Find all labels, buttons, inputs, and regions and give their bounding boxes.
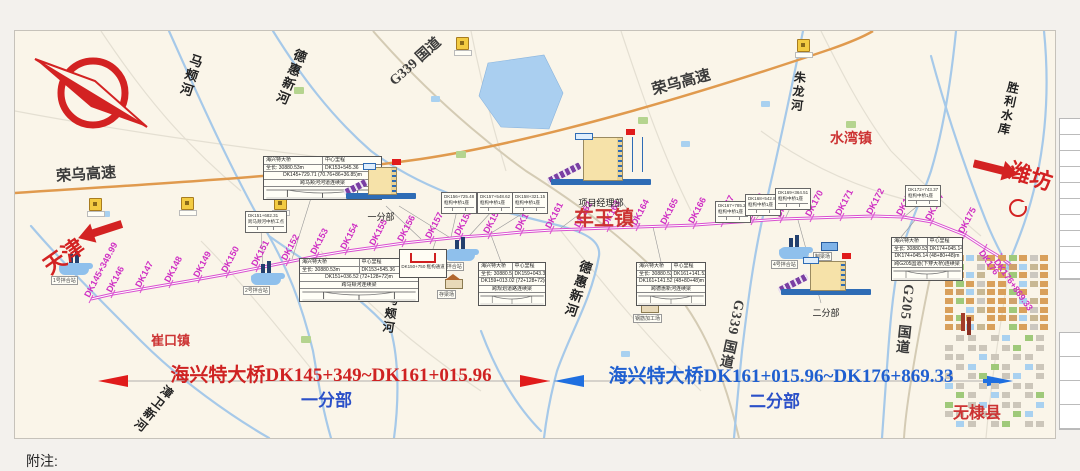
map-stage: 天津 潍坊 海兴特大桥DK145+349~DK161+015.96 一分部 海兴… [14,30,1056,439]
city-block [945,307,953,313]
city-block [987,289,995,295]
road-label: 荣乌高速 [55,161,116,186]
city-block [979,345,987,351]
city-block [1036,421,1044,427]
city-block [956,298,964,304]
city-block [977,298,985,304]
city-block [956,335,964,341]
city-block [966,272,974,278]
bridge-end-loop-icon [1009,199,1027,217]
city-block [1030,315,1038,321]
city-block [966,307,974,313]
alignment-marker: DK175 [956,206,978,235]
poi-icon [181,197,194,210]
bridge-info-box: 海兴特大桥中心里程全长: 30880.53mDK159+043.31DK159+… [478,262,546,306]
work-point-callout: DK151+682.31跨马颊河中桥工点 [245,211,287,233]
city-block [998,298,1006,304]
city-block [945,289,953,295]
poi-icon [89,198,102,211]
pond [431,96,440,102]
city-block [968,392,976,398]
city-block [1036,373,1044,379]
river-label: 漳卫新河 [130,382,178,437]
city-block [1030,272,1038,278]
notes-label: 附注: [26,451,58,471]
pond [681,141,690,147]
river-label: 马颊河 [175,51,207,100]
city-block [966,289,974,295]
margin-table [1059,118,1080,280]
city-block [1036,364,1044,370]
bridge-info-box: 海兴特大桥中心里程全长: 30880.53mDK161+141.52DK161+… [636,262,706,306]
city-block [968,345,976,351]
facility-house-icon: 存梁场 [445,265,475,289]
city-block [977,272,985,278]
city-block [968,335,976,341]
section-left-title: 海兴特大桥DK145+349~DK161+015.96 [131,360,531,387]
river-label: 德惠新河 [270,46,310,109]
city-block [1002,421,1010,427]
city-tower-icon [961,313,965,331]
city-block [987,298,995,304]
town-label: 崔口镇 [151,330,190,349]
city-block [987,324,995,330]
city-block [998,307,1006,313]
pond [761,101,770,107]
section-right-title: 海兴特大桥DK161+015.96~DK176+869.33 [561,361,1001,388]
city-block [1009,324,1017,330]
poi-icon [456,37,469,50]
section-left-start-arrow [98,375,128,387]
city-block [987,281,995,287]
city-block [1009,315,1017,321]
city-block [1030,264,1038,270]
city-block [1040,315,1048,321]
hq-label: 一分部 [332,210,430,223]
city-block [966,324,974,330]
section-right-subtitle: 二分部 [749,387,800,412]
city-block [1040,324,1048,330]
hq-site: 二分部 [781,255,871,305]
city-block [956,392,964,398]
city-block [1013,354,1021,360]
city-block [1040,307,1048,313]
city-block [1019,255,1027,261]
city-block [945,315,953,321]
facility-plant-icon: 2号拌合站 [251,261,281,285]
city-block [1002,392,1010,398]
city-block [1040,264,1048,270]
city-block [1025,335,1033,341]
city-block [1013,345,1021,351]
green-patch [456,151,466,158]
city-block [1030,255,1038,261]
pond [621,351,630,357]
lake [479,55,563,129]
alignment-marker: DK166 [686,196,708,225]
city-block [1009,307,1017,313]
city-block [977,281,985,287]
city-block [945,402,953,408]
city-block [966,255,974,261]
town-label: 无棣县 [953,399,1001,423]
city-block [1040,272,1048,278]
city-block [1019,315,1027,321]
margin-table [1059,332,1080,430]
city-block [987,307,995,313]
alignment-marker: DK146 [104,265,126,294]
hq-label: 项目经理部 [531,196,671,209]
section-left-subtitle: 一分部 [301,386,352,411]
river-label: 朱龙河 [788,70,809,114]
compass-north-icon [29,43,151,143]
red-flag-icon [842,253,851,259]
city-block [945,281,953,287]
city-block [1009,264,1017,270]
facility-shed-icon: 制梁场 [821,227,851,251]
city-block [1019,264,1027,270]
river-label: 德惠新河 [559,258,596,321]
city-block [1002,345,1010,351]
red-flag-icon [392,159,401,165]
city-block [977,324,985,330]
city-block [991,392,999,398]
city-block [977,289,985,295]
culvert-box: DK150+750 框构通道 [399,249,447,278]
city-block [1025,421,1033,427]
work-point-callout: DK157+548.62框构中桥1座 [477,192,513,214]
city-block [1009,255,1017,261]
red-flag-icon [626,129,635,135]
city-block [945,411,953,417]
city-block [1002,364,1010,370]
city-block [1025,383,1033,389]
bridge-info-box: 海兴特大桥中心里程全长: 30880.53mDK174+045.14DK174+… [891,237,963,281]
city-block [966,298,974,304]
alignment-marker: DK153 [308,227,330,256]
city-block [1036,335,1044,341]
green-patch [301,336,311,343]
city-block [1025,411,1033,417]
city-block [945,354,953,360]
city-block [1009,298,1017,304]
river-label: 胜利水库 [994,80,1022,138]
city-block [1040,281,1048,287]
city-block [1013,373,1021,379]
city-block [1025,354,1033,360]
town-label: 水湾镇 [830,128,872,148]
alignment-marker: DK152 [279,233,301,262]
poi-icon [797,39,810,52]
city-block [1002,373,1010,379]
alignment-marker: DK150 [219,245,241,274]
city-block [1030,281,1038,287]
city-block [966,315,974,321]
hq-label: 二分部 [763,306,889,319]
city-block [1002,335,1010,341]
city-block [945,324,953,330]
alignment-marker: DK147 [133,260,155,289]
city-block [1013,402,1021,408]
city-block [1013,411,1021,417]
road-label: G339 国道 [384,32,444,89]
alignment-marker: DK149 [191,250,213,279]
city-block [945,298,953,304]
city-block [1040,298,1048,304]
city-block [1013,383,1021,389]
city-block [979,354,987,360]
city-block [1002,402,1010,408]
alignment-marker: DK148 [162,255,184,284]
city-block [1025,364,1033,370]
city-block [1019,272,1027,278]
city-block [1036,345,1044,351]
city-block [1019,324,1027,330]
alignment-marker: DK154 [338,222,360,251]
city-block [1036,402,1044,408]
city-block [998,289,1006,295]
city-block [998,315,1006,321]
alignment-marker: DK171 [833,188,855,217]
work-point-callout: DK169+364.51框构中桥1座 [775,188,811,210]
city-block [956,281,964,287]
city-block [991,335,999,341]
city-block [956,354,964,360]
city-block [1036,392,1044,398]
work-point-callout: DK172+743.37框构中桥1座 [905,185,941,207]
alignment-marker: DK172 [864,187,886,216]
city-block [945,345,953,351]
map-panel: 天津 潍坊 海兴特大桥DK145+349~DK161+015.96 一分部 海兴… [14,30,1056,439]
road-label: G205 国道 [890,283,917,355]
green-patch [846,121,856,128]
hq-site: 一分部 [346,161,416,209]
green-patch [638,117,648,124]
city-block [991,354,999,360]
city-block [956,289,964,295]
facility-plant-icon: 3号拌合站 [445,237,475,261]
hq-site: 项目经理部 [551,131,651,195]
city-block [977,307,985,313]
road-label: 荣乌高速 [649,64,712,100]
city-block [1030,324,1038,330]
city-block [966,281,974,287]
city-block [1025,392,1033,398]
city-block [1040,255,1048,261]
city-block [1040,289,1048,295]
city-block [987,315,995,321]
road-label: G339 国道 [714,298,748,371]
work-point-callout: DK156+725.48框构中桥1座 [441,192,477,214]
